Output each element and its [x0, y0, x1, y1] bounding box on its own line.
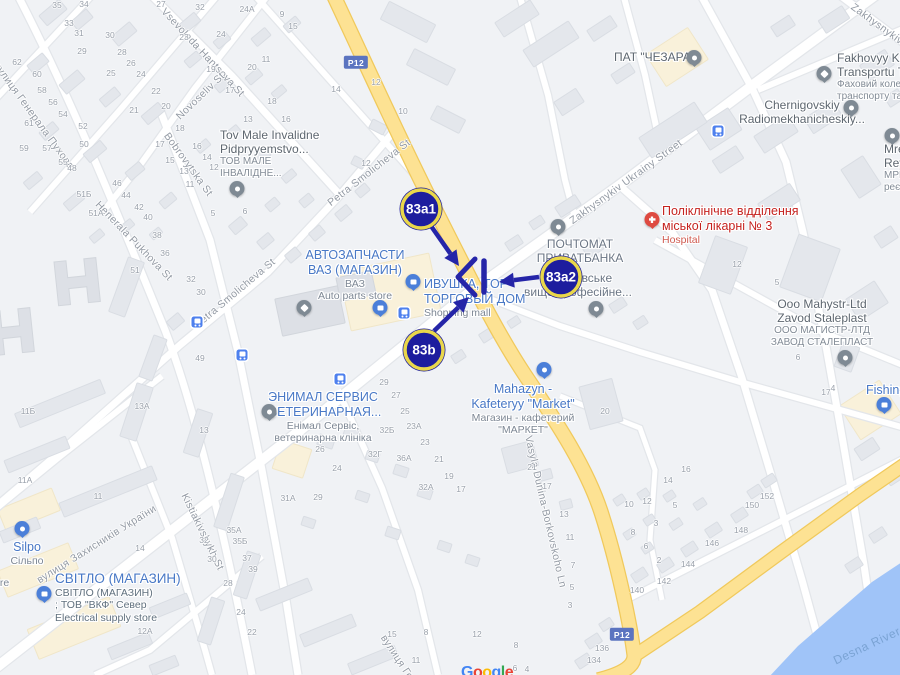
google-logo-letter: o — [473, 664, 482, 675]
place-pin-icon[interactable] — [230, 181, 245, 196]
google-logo-letter: G — [461, 664, 473, 675]
google-logo[interactable]: Google — [461, 664, 513, 675]
place-pin-icon[interactable] — [551, 219, 566, 234]
google-logo-letter: g — [492, 664, 501, 675]
shopping-bag-pin-icon[interactable] — [877, 397, 892, 412]
shopping-cart-pin-icon[interactable] — [15, 521, 30, 536]
bus-stop-icon[interactable] — [192, 317, 203, 328]
route-shield-p12: P12 — [610, 628, 634, 641]
shopping-cart-pin-icon[interactable] — [537, 362, 552, 377]
place-pin-icon[interactable] — [589, 301, 604, 316]
bus-stop-icon[interactable] — [399, 308, 410, 319]
bus-stop-icon[interactable] — [335, 374, 346, 385]
bus-stop-icon[interactable] — [237, 350, 248, 361]
google-maps-canvas[interactable]: Vsevoloda Hantsova StNovoseliv StBobrovy… — [0, 0, 900, 675]
shopping-bag-pin-icon[interactable] — [373, 300, 388, 315]
school-pin-icon[interactable] — [297, 300, 312, 315]
google-logo-letter: o — [482, 664, 491, 675]
google-logo-letter: e — [505, 664, 513, 675]
place-pin-icon[interactable] — [844, 100, 859, 115]
hospital-pin-icon[interactable] — [645, 212, 660, 227]
place-pin-icon[interactable] — [838, 350, 853, 365]
shopping-bag-pin-icon[interactable] — [406, 274, 421, 289]
shopping-bag-pin-icon[interactable] — [37, 586, 52, 601]
map-icons-layer: P12P12 — [0, 0, 900, 675]
route-shield-p12: P12 — [344, 56, 368, 69]
bus-stop-icon[interactable] — [713, 126, 724, 137]
place-pin-icon[interactable] — [885, 128, 900, 143]
place-pin-icon[interactable] — [687, 50, 702, 65]
school-pin-icon[interactable] — [817, 66, 832, 81]
place-pin-icon[interactable] — [262, 404, 277, 419]
